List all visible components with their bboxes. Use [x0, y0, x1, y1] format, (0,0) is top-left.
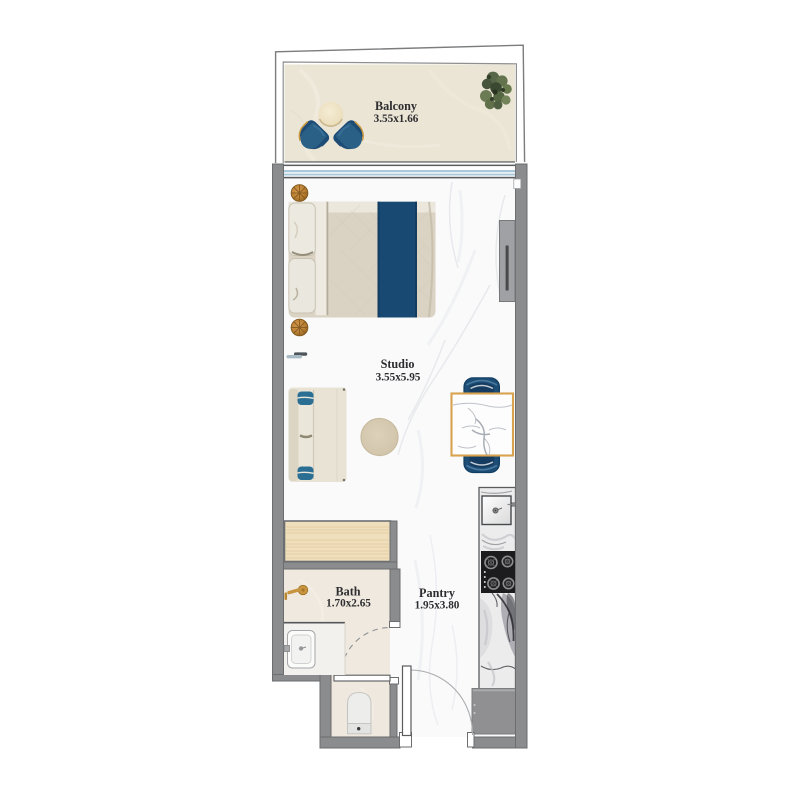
svg-text:Pantry: Pantry — [419, 586, 455, 600]
svg-text:3.55x5.95: 3.55x5.95 — [376, 372, 421, 384]
svg-text:1.95x3.80: 1.95x3.80 — [415, 600, 460, 612]
svg-text:1.70x2.65: 1.70x2.65 — [326, 598, 371, 610]
svg-text:Balcony: Balcony — [375, 99, 417, 113]
svg-text:Studio: Studio — [381, 357, 415, 371]
svg-text:Bath: Bath — [335, 585, 360, 599]
svg-text:3.55x1.66: 3.55x1.66 — [374, 113, 419, 125]
